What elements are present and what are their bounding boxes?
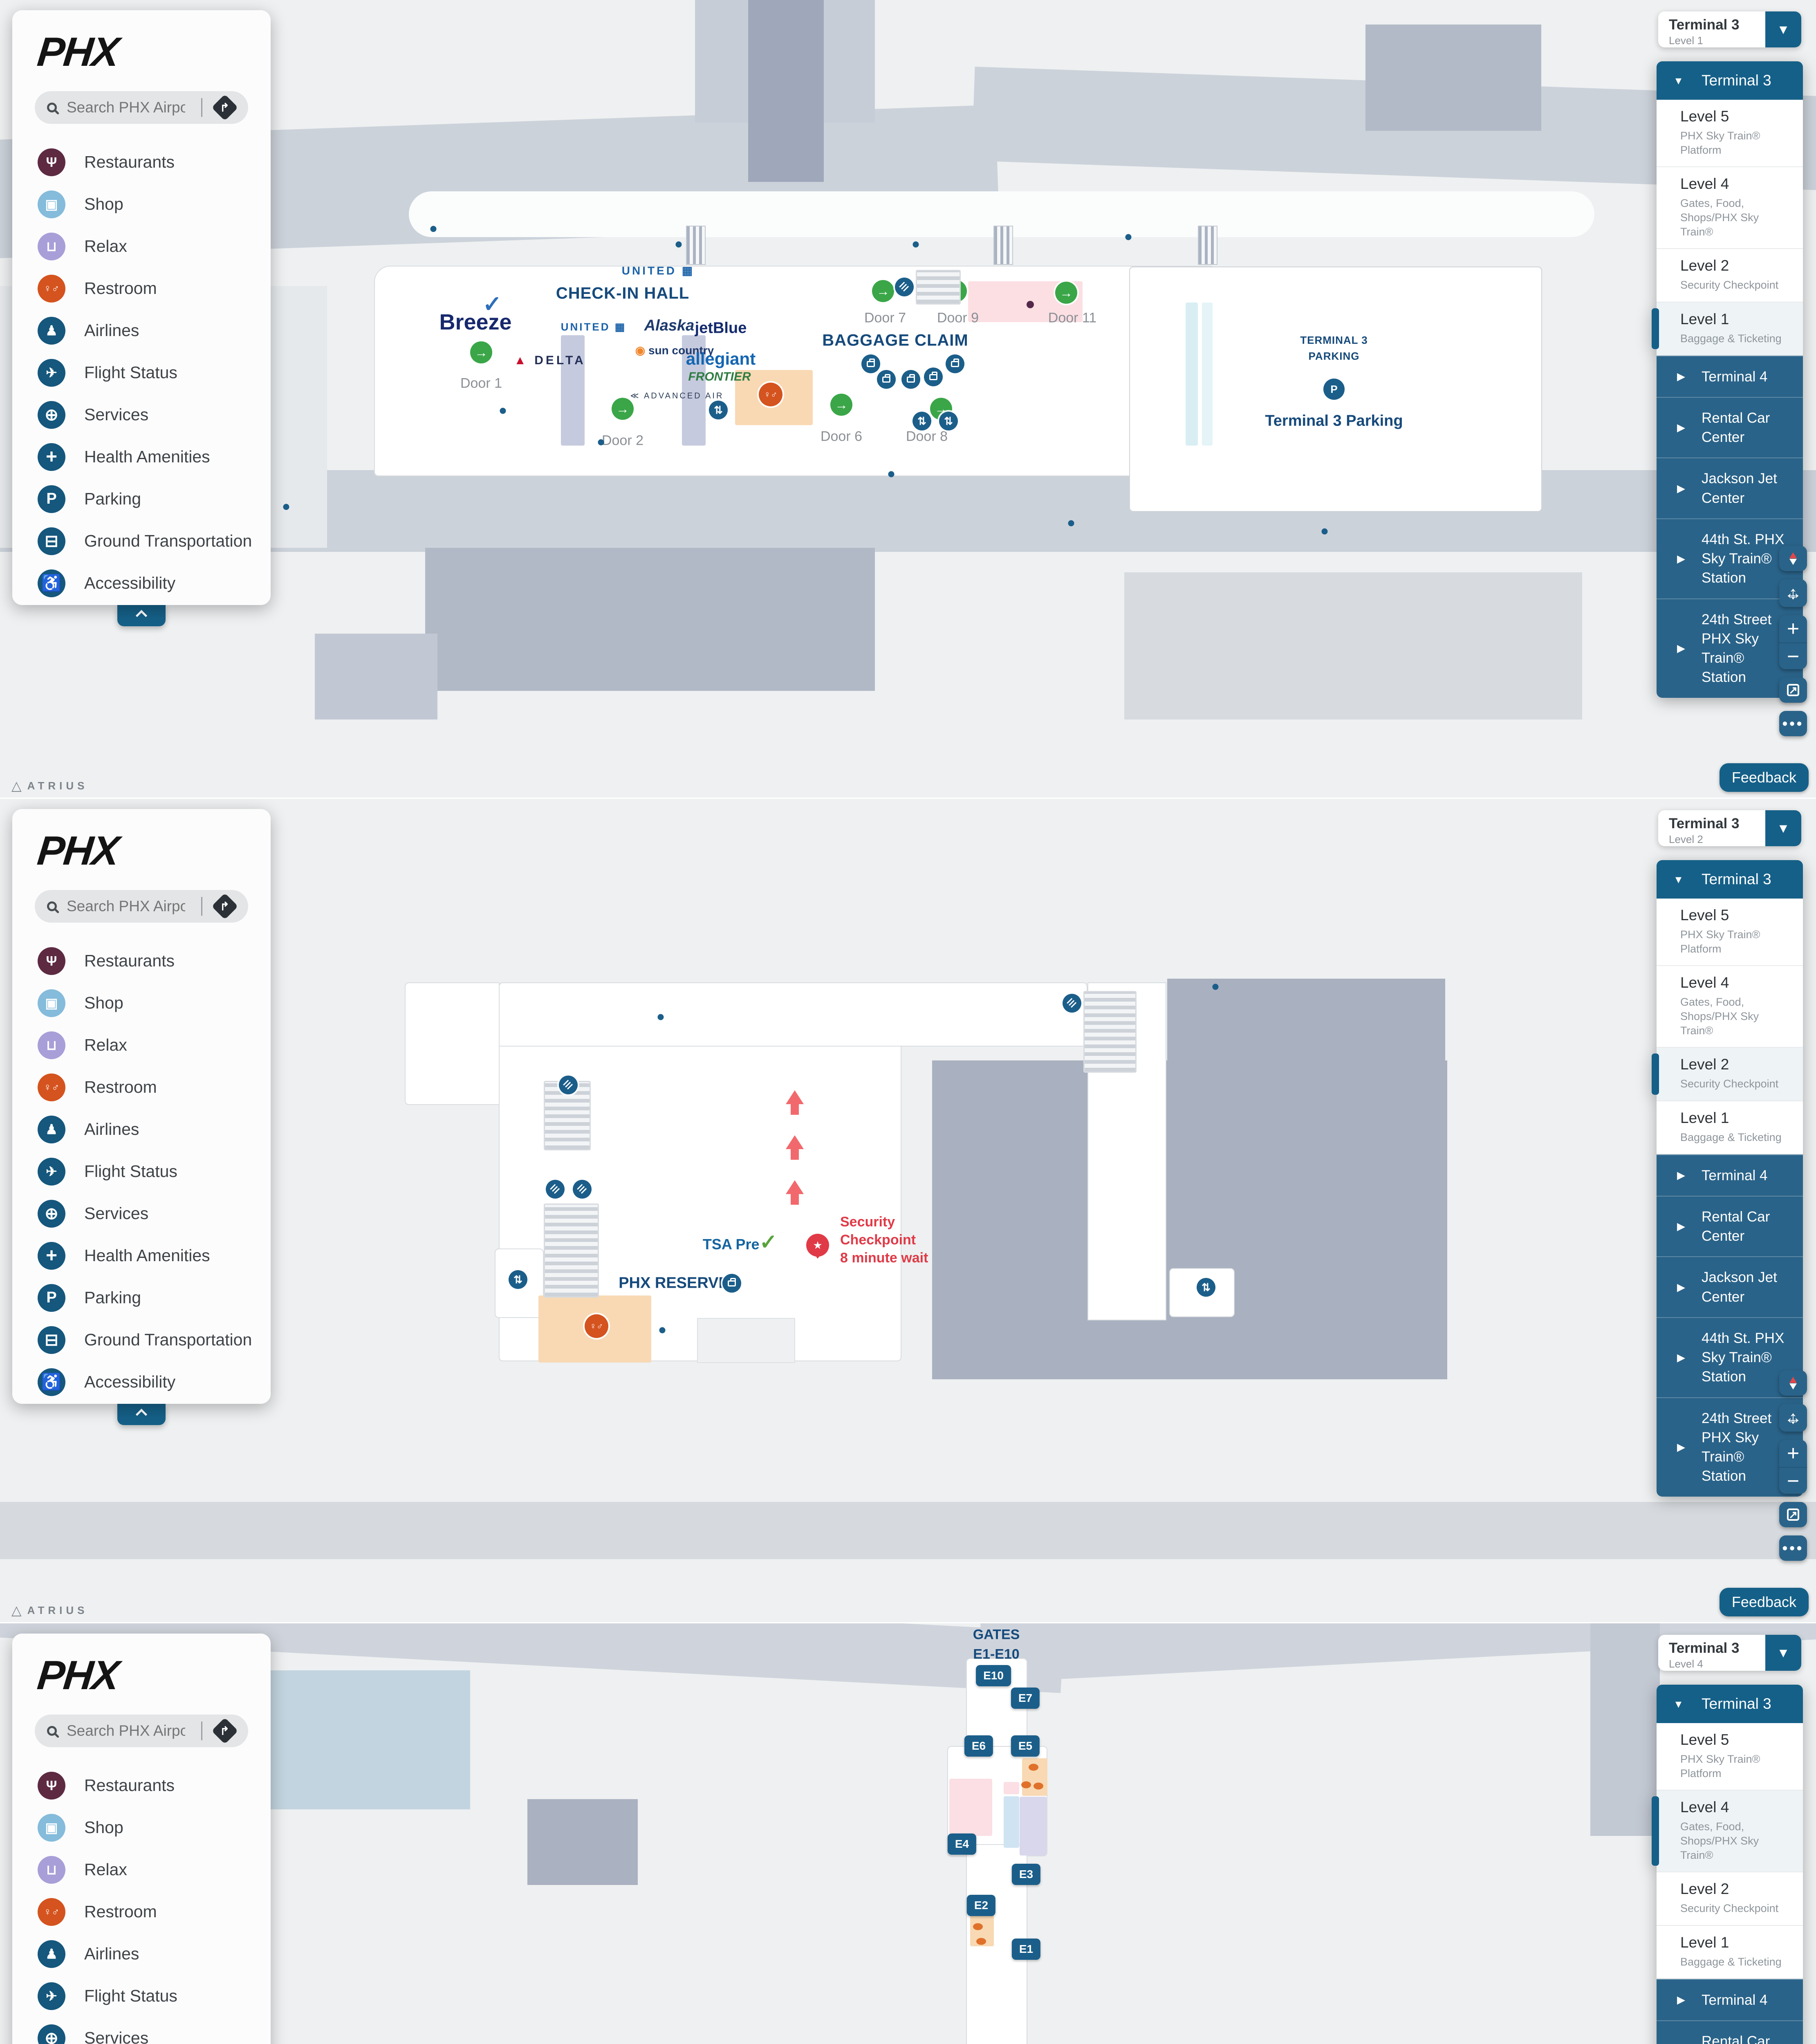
shopping-bag-icon: ▣ (38, 989, 65, 1017)
map-road (0, 1502, 1816, 1559)
door-label: Door 2 (602, 433, 643, 449)
lounge-chair-icon: ⊔ (38, 233, 65, 260)
direction-arrow-up (786, 1135, 804, 1149)
level-option-2[interactable]: Level 2Security Checkpoint (1657, 1872, 1803, 1925)
room-pink (1004, 1782, 1019, 1794)
chevron-right-icon: ▶ (1677, 1219, 1685, 1234)
map-view-terminal3-level1: UNITED ▦ CHECK-IN HALL ✓Breeze UNITED ▦ … (0, 0, 1816, 798)
phx-logo: PHX (35, 827, 121, 874)
chevron-right-icon: ▶ (1677, 421, 1685, 435)
fork-knife-icon: Ψ (38, 947, 65, 975)
destination-terminal-4[interactable]: ▶Terminal 4 (1657, 1979, 1803, 2020)
lounge-chair-icon: ⊔ (38, 1031, 65, 1059)
directions-icon[interactable]: ↱ (211, 1717, 238, 1744)
search-bar[interactable]: ↱ (35, 1715, 248, 1747)
dropdown-toggle-button[interactable]: ▼ (1765, 11, 1801, 47)
airline-logo-united-curb: UNITED ▦ (622, 264, 695, 278)
restroom-icon[interactable]: ♀♂ (585, 1314, 608, 1338)
phx-reserve-icon[interactable] (722, 1274, 741, 1293)
door-label: Door 7 (864, 310, 906, 326)
poi-dot[interactable] (676, 242, 682, 248)
compass-button[interactable] (1779, 546, 1807, 571)
fork-knife-icon: Ψ (38, 1772, 65, 1800)
wheelchair-icon: ♿ (38, 1368, 65, 1396)
airline-desk-icon: ♟ (38, 1116, 65, 1143)
airline-logo-alaska: Alaska (644, 317, 695, 335)
sidebar-item-accessibility[interactable]: ♿Accessibility (12, 1361, 271, 1403)
sidebar-menu: ΨRestaurants ▣Shop ⊔Relax ♀♂Restroom ♟Ai… (12, 141, 271, 604)
location-dropdown[interactable]: Terminal 3 Level 4 ▼ (1658, 1635, 1801, 1671)
suncountry-sun-icon: ◉ (635, 344, 645, 357)
airline-logo-frontier: FRONTIER (688, 370, 751, 384)
atrius-attribution: △ATRIUS (11, 778, 88, 793)
restroom-icon: ♀♂ (38, 1898, 65, 1926)
escalator-icon[interactable]: ☰ (546, 1180, 565, 1199)
chevron-right-icon: ▶ (1677, 1440, 1685, 1455)
poi-dot[interactable] (1322, 529, 1328, 535)
sidebar-menu: ΨRestaurants ▣Shop ⊔Relax ♀♂Restroom ♟Ai… (12, 1764, 271, 2044)
chevron-right-icon: ▶ (1677, 1280, 1685, 1294)
sidebar-item-relax[interactable]: ⊔Relax (12, 1849, 271, 1891)
sidebar-item-services[interactable]: ⊕Services (12, 1192, 271, 1235)
door-label: Door 6 (821, 429, 862, 445)
chevron-right-icon: ▶ (1677, 641, 1685, 656)
terminal3-floor-level2 (499, 982, 1087, 1047)
compass-needle-icon (1789, 1383, 1797, 1393)
sidebar-item-restroom[interactable]: ♀♂Restroom (12, 1066, 271, 1108)
sidebar-item-ground-transportation[interactable]: ⊟Ground Transportation (12, 1319, 271, 1361)
restaurant-dot[interactable] (973, 1923, 983, 1930)
gate-e10[interactable]: E10 (976, 1665, 1011, 1686)
map-building (1124, 572, 1582, 719)
compass-needle-icon (1789, 549, 1797, 558)
zoom-controls: +− (1779, 615, 1807, 669)
chevron-down-icon: ▾ (1675, 74, 1681, 88)
terminal3-parking-label: Terminal 3 Parking (1265, 412, 1403, 430)
globe-icon: ⊕ (38, 2024, 65, 2044)
sidebar-item-shop[interactable]: ▣Shop (12, 982, 271, 1024)
map-view-terminal3-level2: ☰ ☰ ☰ ☰ ⇅ ⇅ ♀♂ TSA Pre✓ ★ SecurityCheckp… (0, 798, 1816, 1622)
door-label: Door 11 (1048, 310, 1096, 326)
chevron-right-icon: ▶ (1677, 481, 1685, 495)
terminal3-group-header[interactable]: ▾Terminal 3 (1657, 1685, 1803, 1723)
gate-e1[interactable]: E1 (1012, 1939, 1040, 1960)
sidebar-item-shop[interactable]: ▣Shop (12, 1806, 271, 1849)
search-bar[interactable]: ↱ (35, 890, 248, 923)
gates-e-label: GATESE1-E10 (973, 1625, 1020, 1664)
sidebar: PHX ↱ ΨRestaurants ▣Shop ⊔Relax ♀♂Restro… (12, 10, 271, 605)
sidebar-item-parking[interactable]: PParking (12, 1277, 271, 1319)
terminal3-group-header[interactable]: ▾Terminal 3 (1657, 860, 1803, 899)
gate-e5[interactable]: E5 (1011, 1735, 1040, 1757)
level-option-5[interactable]: Level 5PHX Sky Train® Platform (1657, 1723, 1803, 1791)
sidebar-item-restaurants[interactable]: ΨRestaurants (12, 141, 271, 183)
compass-button[interactable] (1779, 1370, 1807, 1396)
poi-dot[interactable] (913, 242, 919, 248)
phx-logo: PHX (35, 1652, 121, 1699)
restroom-icon: ♀♂ (38, 275, 65, 303)
map-building (748, 0, 824, 182)
parking-icon[interactable]: P (1323, 379, 1345, 400)
level-option-4[interactable]: Level 4Gates, Food, Shops/PHX Sky Train® (1657, 966, 1803, 1048)
door-label: Door 1 (460, 376, 502, 392)
chevron-up-icon (136, 610, 147, 621)
escalator-icon[interactable]: ☰ (573, 1180, 592, 1199)
pan-button[interactable]: ↔↕ (1779, 1404, 1807, 1432)
entrance-icon[interactable]: → (470, 341, 492, 363)
restaurant-dot[interactable] (1029, 1764, 1038, 1771)
sidebar-collapse-button[interactable] (117, 605, 166, 626)
entrance-icon[interactable]: → (612, 398, 634, 420)
elevator-icon[interactable]: ⇅ (709, 401, 728, 419)
breeze-check-icon: ✓ (483, 291, 502, 318)
bus-icon: ⊟ (38, 527, 65, 555)
sidebar-item-relax[interactable]: ⊔Relax (12, 1024, 271, 1066)
sidebar-item-restaurants[interactable]: ΨRestaurants (12, 1764, 271, 1806)
escalator-bank (544, 1204, 599, 1298)
restaurant-dot[interactable] (1021, 1782, 1031, 1788)
stairs-area (916, 270, 961, 305)
level-selector-panel: ▾Terminal 3 Level 5PHX Sky Train® Platfo… (1657, 1685, 1803, 2044)
map-view-terminal3-level4: GATESE1-E10 E10 E7 E6 E5 E4 E3 E2 E1 ! T… (0, 1622, 1816, 2044)
parking-icon: P (38, 1284, 65, 1312)
chevron-right-icon: ▶ (1677, 370, 1685, 384)
sidebar-item-restroom[interactable]: ♀♂Restroom (12, 267, 271, 309)
more-options-button[interactable]: ••• (1779, 711, 1807, 736)
chevron-right-icon: ▶ (1677, 1168, 1685, 1183)
room-pink (949, 1779, 992, 1836)
security-checkpoint-label: SecurityCheckpoint8 minute wait (840, 1213, 928, 1267)
restroom-icon: ♀♂ (38, 1074, 65, 1101)
level-option-1[interactable]: Level 1Baggage & Ticketing (1657, 1926, 1803, 1979)
sidebar-item-ground-transportation[interactable]: ⊟Ground Transportation (12, 520, 271, 562)
search-input[interactable] (67, 1722, 185, 1739)
divider (201, 1721, 202, 1740)
baggage-carousel-icon[interactable] (861, 354, 880, 373)
poi-dot[interactable] (283, 504, 289, 510)
restaurant-dot[interactable] (976, 1938, 986, 1945)
directions-icon[interactable]: ↱ (211, 893, 238, 919)
fork-knife-icon: Ψ (38, 148, 65, 176)
poi-dot[interactable] (1068, 520, 1074, 527)
level-option-4[interactable]: Level 4Gates, Food, Shops/PHX Sky Train® (1657, 1791, 1803, 1872)
parking-icon: P (38, 485, 65, 513)
poi-dot[interactable] (1125, 234, 1132, 240)
entrance-icon[interactable]: → (872, 280, 894, 302)
external-link-icon: ↗ (1787, 684, 1799, 696)
shopping-bag-icon: ▣ (38, 1814, 65, 1842)
chevron-down-icon: ▾ (1675, 1697, 1681, 1711)
map-controls: ↔↕ +− ↗ ••• (1779, 1370, 1807, 1561)
map-building (425, 548, 875, 691)
elevator-icon[interactable]: ⇅ (1197, 1278, 1215, 1297)
atrius-logo-icon: △ (11, 1602, 22, 1618)
sidebar: PHX ↱ ΨRestaurants ▣Shop ⊔Relax ♀♂Restro… (12, 809, 271, 1404)
destination-terminal-4[interactable]: ▶Terminal 4 (1657, 1154, 1803, 1196)
sidebar-item-health[interactable]: +Health Amenities (12, 1235, 271, 1277)
pan-arrows-icon: ↕ (1789, 1407, 1798, 1428)
poi-dot[interactable] (659, 1327, 666, 1334)
level-option-2[interactable]: Level 2Security Checkpoint (1657, 1048, 1803, 1101)
feedback-button[interactable]: Feedback (1720, 1588, 1809, 1616)
sidebar-item-flight-status[interactable]: ✈Flight Status (12, 1975, 271, 2017)
map-building (1365, 25, 1541, 131)
airline-logo-advanced-air: ≪ ADVANCED AIR (630, 391, 724, 401)
poi-dot[interactable] (430, 226, 437, 232)
elevator-icon[interactable]: ⇅ (912, 412, 931, 430)
sidebar-item-shop[interactable]: ▣Shop (12, 183, 271, 225)
sidebar-item-airlines[interactable]: ♟Airlines (12, 1933, 271, 1975)
airline-desk-icon: ♟ (38, 317, 65, 345)
wheelchair-icon: ♿ (38, 569, 65, 597)
plane-icon: ✈ (38, 1982, 65, 2010)
sidebar-item-relax[interactable]: ⊔Relax (12, 225, 271, 267)
chevron-down-icon: ▾ (1675, 872, 1681, 887)
zoom-out-button[interactable]: − (1779, 642, 1807, 669)
baggage-claim-label: BAGGAGE CLAIM (822, 332, 968, 350)
check-in-hall-label: CHECK-IN HALL (556, 285, 689, 303)
chevron-right-icon: ▶ (1677, 1350, 1685, 1365)
lounge-chair-icon: ⊔ (38, 1856, 65, 1884)
poi-dot[interactable] (888, 471, 895, 477)
more-options-button[interactable]: ••• (1779, 1535, 1807, 1561)
united-globe-icon: ▦ (682, 264, 695, 277)
phx-reserve-label: PHX RESERVE (619, 1275, 729, 1292)
elevator-icon[interactable]: ⇅ (509, 1270, 527, 1289)
united-globe-icon: ▦ (615, 321, 627, 333)
poi-dot[interactable] (500, 408, 506, 414)
phx-logo: PHX (35, 29, 121, 76)
divider (201, 897, 202, 916)
plane-icon: ✈ (38, 1158, 65, 1186)
sidebar-item-services[interactable]: ⊕Services (12, 394, 271, 436)
divider (201, 98, 202, 117)
level-option-5[interactable]: Level 5PHX Sky Train® Platform (1657, 899, 1803, 966)
level-option-1[interactable]: Level 1Baggage & Ticketing (1657, 303, 1803, 356)
escalator-icon[interactable]: ☰ (895, 278, 914, 296)
airline-logo-delta: ▲ DELTA (514, 354, 586, 368)
location-dropdown[interactable]: Terminal 3 Level 2 ▼ (1658, 810, 1801, 846)
room-cyan (1202, 303, 1213, 446)
zoom-out-button[interactable]: − (1779, 1467, 1807, 1494)
sidebar-item-health[interactable]: +Health Amenities (12, 436, 271, 478)
search-input[interactable] (67, 898, 185, 915)
advanced-air-wings-icon: ≪ (630, 392, 641, 401)
search-input[interactable] (67, 99, 185, 116)
sidebar-item-restaurants[interactable]: ΨRestaurants (12, 940, 271, 982)
map-building (315, 634, 437, 719)
destination-rental-car-center[interactable]: ▶Rental Car Center (1657, 2020, 1803, 2044)
sidebar-menu: ΨRestaurants ▣Shop ⊔Relax ♀♂Restroom ♟Ai… (12, 940, 271, 1403)
share-button[interactable]: ↗ (1779, 677, 1807, 703)
level-option-4[interactable]: Level 4Gates, Food, Shops/PHX Sky Train® (1657, 167, 1803, 249)
search-bar[interactable]: ↱ (35, 91, 248, 124)
map-building (1590, 1623, 1660, 1836)
sidebar-item-airlines[interactable]: ♟Airlines (12, 309, 271, 352)
compass-needle-icon (1789, 559, 1797, 569)
globe-icon: ⊕ (38, 401, 65, 429)
gate-e4[interactable]: E4 (948, 1833, 976, 1855)
delta-widget-icon: ▲ (514, 354, 529, 367)
escalator-bank (1083, 991, 1137, 1073)
door-label: Door 9 (937, 310, 979, 326)
poi-dot[interactable] (598, 439, 604, 446)
door-label: Door 8 (906, 429, 948, 445)
chevron-up-icon (136, 1409, 147, 1420)
crosswalk (993, 226, 1013, 265)
globe-icon: ⊕ (38, 1200, 65, 1228)
external-link-icon: ↗ (1787, 1508, 1799, 1521)
destination-rental-car-center[interactable]: ▶Rental Car Center (1657, 397, 1803, 458)
direction-arrow-up (786, 1090, 804, 1104)
crosswalk (686, 226, 706, 265)
baggage-carousel-icon[interactable] (877, 370, 896, 389)
compass-needle-icon (1789, 1373, 1797, 1383)
left-wing (405, 982, 500, 1105)
baggage-carousel-icon[interactable] (946, 354, 964, 373)
poi-dot[interactable] (658, 1014, 664, 1020)
restaurant-dot[interactable] (1034, 1783, 1043, 1790)
sidebar-item-parking[interactable]: PParking (12, 478, 271, 520)
airline-logo-jetblue: jetBlue (695, 320, 747, 337)
map-building (527, 1799, 638, 1885)
level-option-2[interactable]: Level 2Security Checkpoint (1657, 249, 1803, 302)
entrance-icon[interactable]: → (830, 394, 852, 416)
sidebar-item-services[interactable]: ⊕Services (12, 2017, 271, 2044)
zoom-in-button[interactable]: + (1779, 615, 1807, 642)
airline-logo-allegiant: allegiant (686, 349, 756, 369)
restroom-icon[interactable]: ♀♂ (759, 383, 782, 406)
plane-icon: ✈ (38, 359, 65, 387)
feedback-button[interactable]: Feedback (1720, 763, 1809, 792)
room-lavender (1020, 1797, 1047, 1856)
poi-dot[interactable] (1213, 984, 1219, 990)
zoom-in-button[interactable]: + (1779, 1440, 1807, 1467)
search-icon (47, 103, 57, 112)
gate-e6[interactable]: E6 (964, 1735, 993, 1757)
pan-button[interactable]: ↔↕ (1779, 579, 1807, 607)
escalator-icon[interactable]: ☰ (1063, 994, 1081, 1013)
chevron-right-icon: ▶ (1677, 551, 1685, 566)
terminal3-parking-small-label: TERMINAL 3PARKING (1300, 332, 1368, 364)
destination-jackson-jet-center[interactable]: ▶Jackson Jet Center (1657, 1256, 1803, 1317)
checkin-kiosk-island (561, 335, 585, 446)
gate-e3[interactable]: E3 (1012, 1864, 1040, 1885)
destination-terminal-4[interactable]: ▶Terminal 4 (1657, 356, 1803, 397)
airline-desk-icon: ♟ (38, 1940, 65, 1968)
share-button[interactable]: ↗ (1779, 1502, 1807, 1527)
room-cyan (1186, 303, 1198, 446)
destination-rental-car-center[interactable]: ▶Rental Car Center (1657, 1196, 1803, 1257)
gate-e2[interactable]: E2 (967, 1895, 995, 1916)
sidebar: PHX ↱ ΨRestaurants ▣Shop ⊔Relax ♀♂Restro… (12, 1634, 271, 2044)
room-blue (1004, 1796, 1019, 1848)
sidebar-collapse-button[interactable] (117, 1404, 166, 1425)
chevron-right-icon: ▶ (1677, 1993, 1685, 2007)
level-option-5[interactable]: Level 5PHX Sky Train® Platform (1657, 100, 1803, 167)
map-controls: ↔↕ +− ↗ ••• (1779, 546, 1807, 736)
directions-icon[interactable]: ↱ (211, 94, 238, 121)
security-checkpoint-pin[interactable]: ★ (806, 1234, 829, 1257)
medical-cross-icon: + (38, 1242, 65, 1270)
location-dropdown[interactable]: Terminal 3 Level 1 ▼ (1658, 11, 1801, 47)
destination-jackson-jet-center[interactable]: ▶Jackson Jet Center (1657, 457, 1803, 518)
sidebar-item-restroom[interactable]: ♀♂Restroom (12, 1891, 271, 1933)
airline-logo-breeze: ✓Breeze (439, 309, 511, 335)
dropdown-toggle-button[interactable]: ▼ (1765, 1635, 1801, 1671)
atrius-logo-icon: △ (11, 778, 22, 793)
direction-arrow-up (786, 1180, 804, 1194)
atrius-attribution: △ATRIUS (11, 1602, 88, 1618)
zoom-controls: +− (1779, 1440, 1807, 1494)
baggage-carousel-icon[interactable] (924, 368, 943, 386)
search-icon (47, 901, 57, 911)
baggage-carousel-icon[interactable] (901, 370, 920, 389)
map-building (266, 1670, 470, 1809)
search-icon (47, 1726, 57, 1736)
sidebar-item-flight-status[interactable]: ✈Flight Status (12, 352, 271, 394)
crosswalk (1198, 226, 1217, 265)
steps-area (697, 1318, 795, 1363)
level-option-1[interactable]: Level 1Baggage & Ticketing (1657, 1101, 1803, 1154)
escalator-icon[interactable]: ☰ (559, 1076, 578, 1094)
sidebar-item-flight-status[interactable]: ✈Flight Status (12, 1150, 271, 1192)
sidebar-item-accessibility[interactable]: ♿Accessibility (12, 562, 271, 604)
medical-cross-icon: + (38, 443, 65, 471)
entrance-icon[interactable]: → (1055, 282, 1077, 304)
airline-logo-united: UNITED ▦ (561, 321, 627, 334)
shopping-bag-icon: ▣ (38, 191, 65, 218)
terminal3-group-header[interactable]: ▾Terminal 3 (1657, 61, 1803, 100)
poi-dot[interactable] (1027, 301, 1034, 308)
dropdown-toggle-button[interactable]: ▼ (1765, 810, 1801, 846)
pan-arrows-icon: ↕ (1789, 583, 1798, 603)
tsa-check-icon: ✓ (760, 1230, 778, 1254)
sidebar-item-airlines[interactable]: ♟Airlines (12, 1108, 271, 1150)
elevator-icon[interactable]: ⇅ (939, 412, 958, 430)
bus-icon: ⊟ (38, 1326, 65, 1354)
tsa-pre-label: TSA Pre✓ (703, 1230, 777, 1255)
gate-e7[interactable]: E7 (1011, 1688, 1040, 1709)
